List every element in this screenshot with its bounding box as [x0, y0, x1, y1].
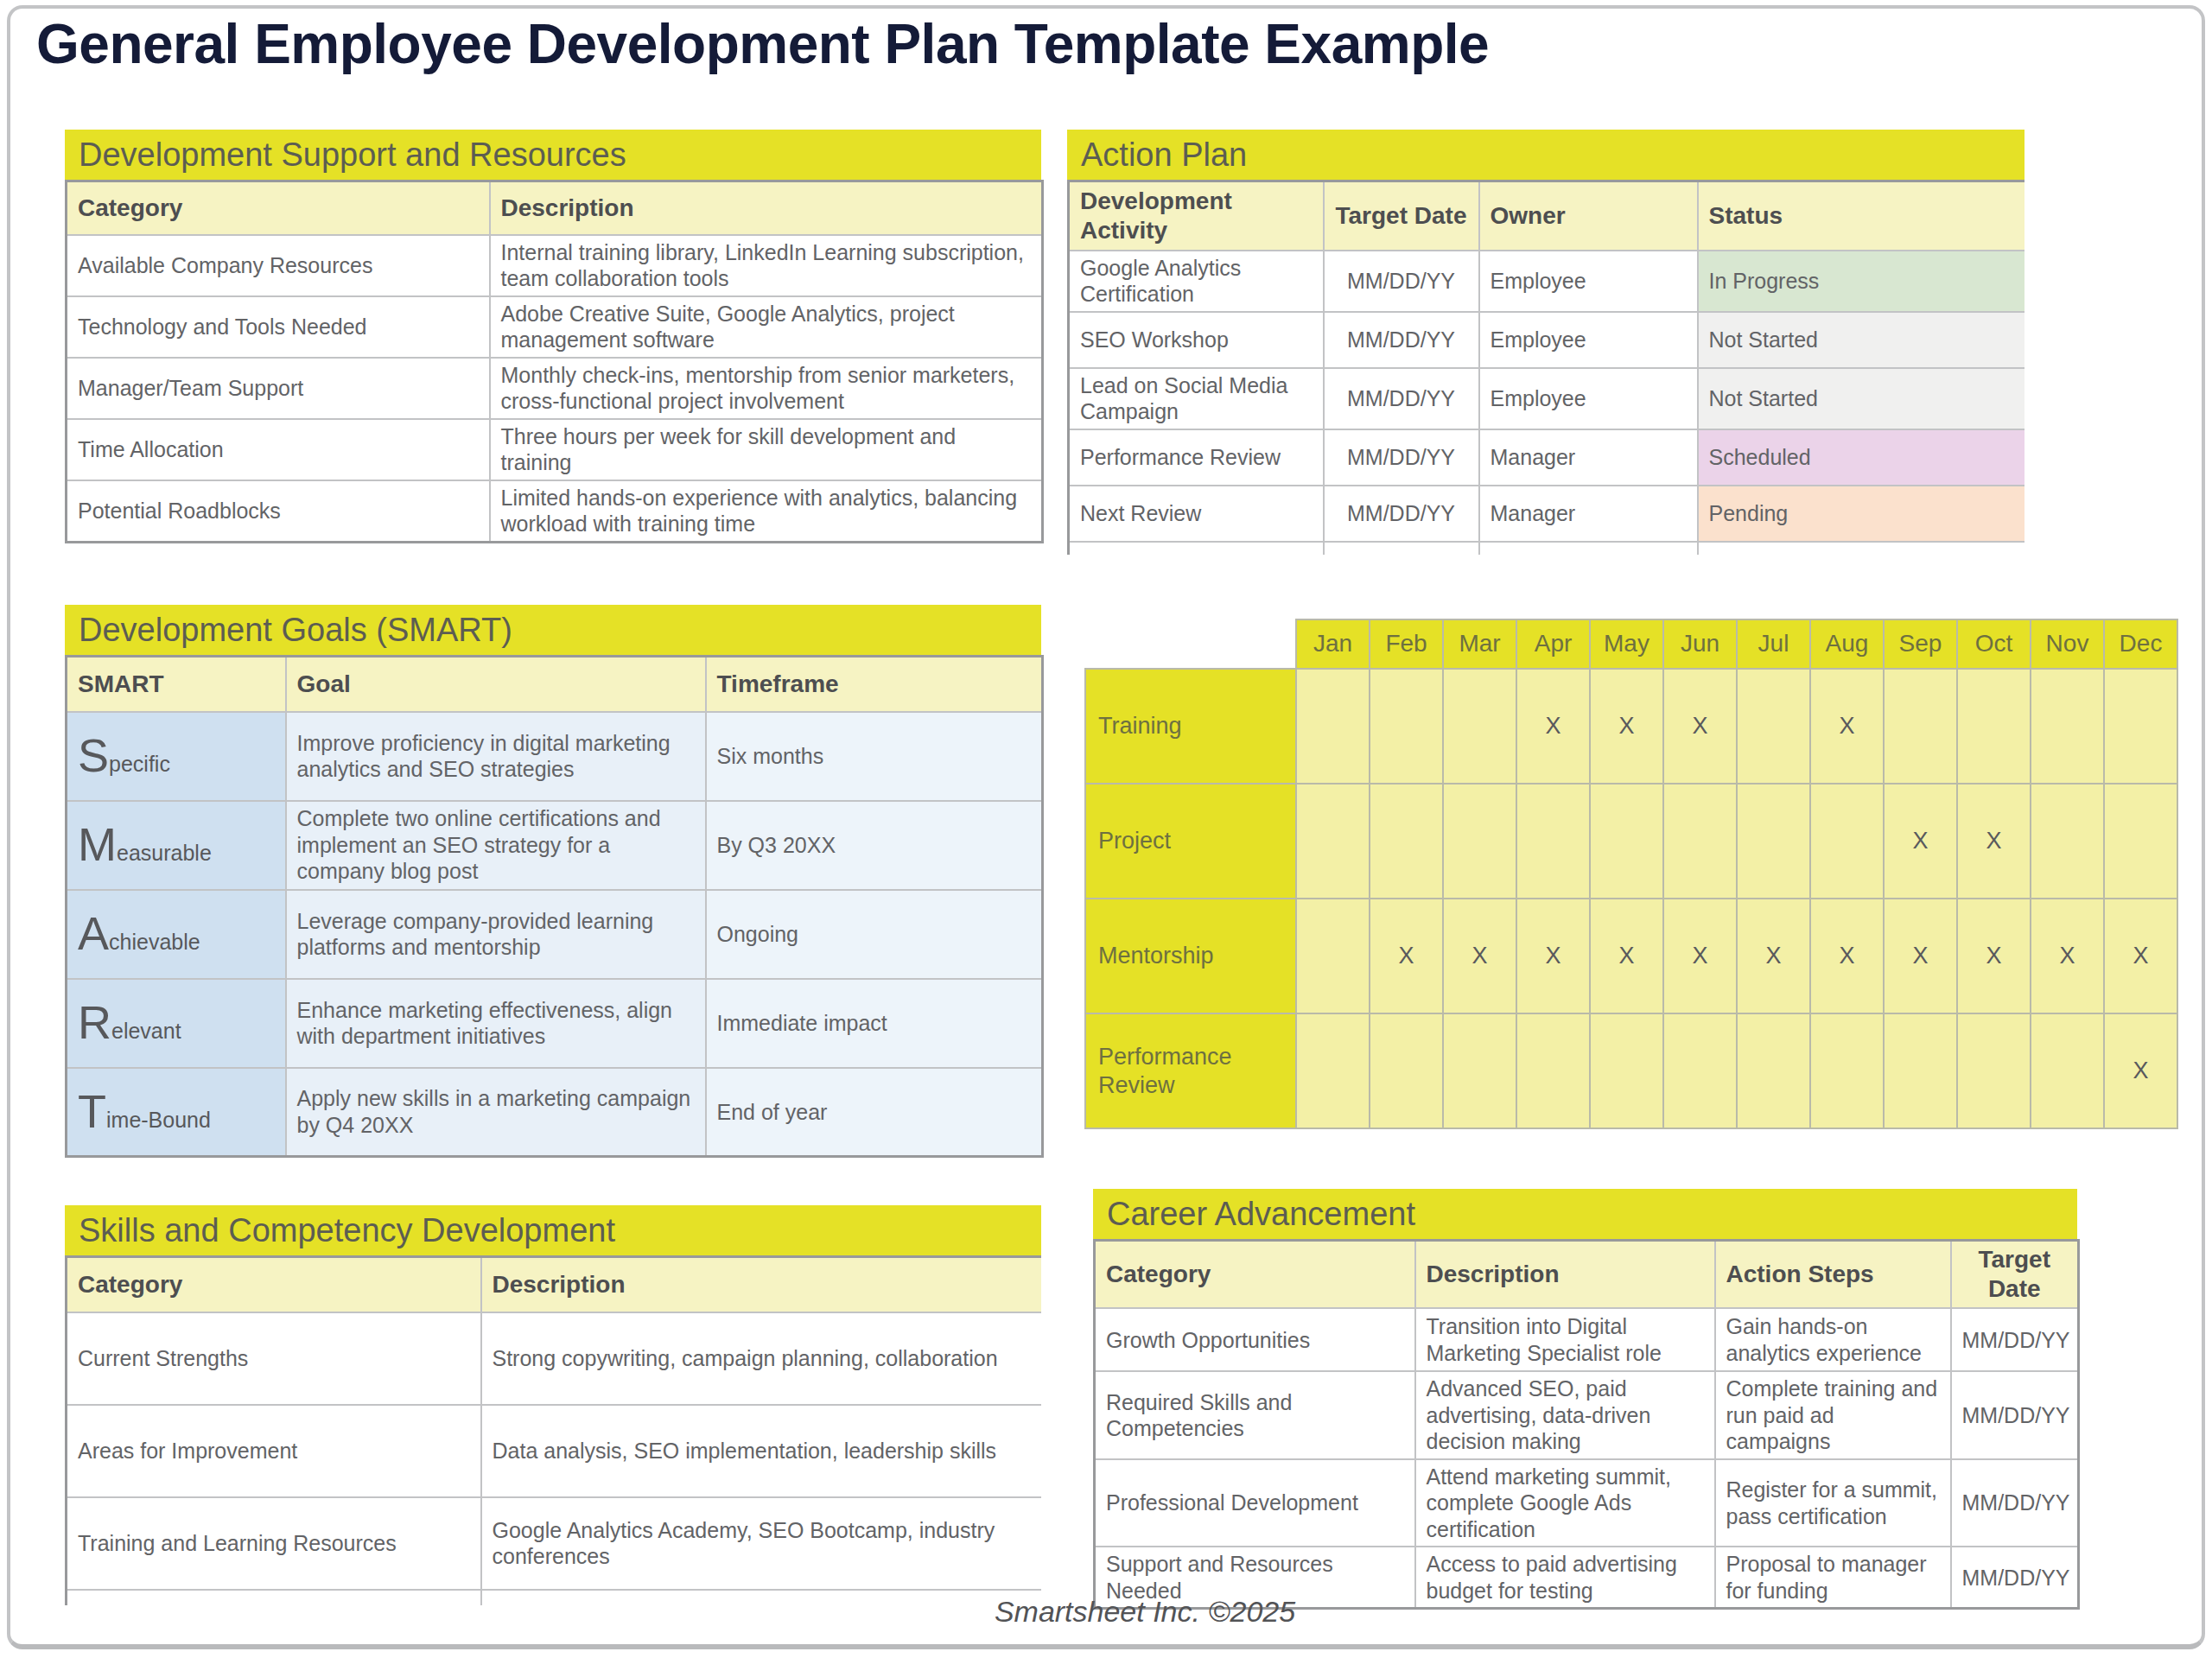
smart-initial: S	[78, 729, 109, 781]
schedule-row-label: Performance Review	[1085, 1013, 1296, 1128]
mark-cell	[1737, 1013, 1810, 1128]
mark-cell	[1884, 669, 1957, 784]
mark-cell	[1296, 899, 1370, 1013]
status-badge: Scheduled	[1698, 429, 2025, 486]
cell-owner: Manager	[1479, 429, 1698, 486]
month-header: Jun	[1663, 619, 1737, 669]
cell-description: Limited hands-on experience with analyti…	[490, 480, 1043, 543]
schedule-row-mentorship: Mentorship X X X X X X X X X X X	[1085, 899, 2177, 1013]
cell-timeframe: End of year	[706, 1068, 1043, 1157]
table-row: Required Skills and Competencies Advance…	[1095, 1371, 2079, 1459]
mark-cell	[1296, 1013, 1370, 1128]
mark-cell	[2031, 1013, 2104, 1128]
month-header: Oct	[1957, 619, 2031, 669]
month-header: Mar	[1443, 619, 1516, 669]
dev-support-section: Development Support and Resources Catego…	[65, 130, 1041, 543]
cell-description: Adobe Creative Suite, Google Analytics, …	[490, 296, 1043, 358]
mark-cell	[1443, 1013, 1516, 1128]
cell-owner: Employee	[1479, 368, 1698, 429]
mark-cell	[2104, 784, 2177, 899]
dev-support-table: Category Description Available Company R…	[65, 180, 1044, 543]
schedule-row-project: Project X X	[1085, 784, 2177, 899]
action-plan-table: Development Activity Target Date Owner S…	[1067, 180, 2024, 555]
mark-cell	[1516, 784, 1590, 899]
header-row: Development Activity Target Date Owner S…	[1069, 181, 2025, 251]
mark-cell: X	[1516, 669, 1590, 784]
table-row: Time Allocation Three hours per week for…	[67, 419, 1043, 480]
table-row: Achievable Leverage company-provided lea…	[67, 890, 1043, 979]
column-header-goal: Goal	[286, 657, 706, 712]
cell-timeframe: By Q3 20XX	[706, 801, 1043, 890]
mark-cell	[1370, 1013, 1443, 1128]
mark-cell	[1737, 784, 1810, 899]
cell-smart-term: Measurable	[67, 801, 286, 890]
mark-cell	[1957, 1013, 2031, 1128]
cell-target-date: MM/DD/YY	[1324, 486, 1479, 542]
month-header: Apr	[1516, 619, 1590, 669]
column-header-description: Description	[490, 181, 1043, 235]
cell-category: Required Skills and Competencies	[1095, 1371, 1415, 1459]
status-badge: In Progress	[1698, 251, 2025, 312]
column-header-category: Category	[67, 181, 490, 235]
mark-cell: X	[1957, 899, 2031, 1013]
mark-cell	[1443, 784, 1516, 899]
mark-cell	[1663, 784, 1737, 899]
cell-target-date: MM/DD/YY	[1324, 368, 1479, 429]
cell-category: Time Allocation	[67, 419, 490, 480]
cell-goal: Complete two online certifications and i…	[286, 801, 706, 890]
cell-target-date: MM/DD/YY	[1324, 251, 1479, 312]
status-badge: Not Started	[1698, 312, 2025, 368]
table-row: Lead on Social Media Campaign MM/DD/YY E…	[1069, 368, 2025, 429]
mark-cell	[1810, 1013, 1884, 1128]
cell-category: Growth Opportunities	[1095, 1308, 1415, 1371]
table-row: Manager/Team Support Monthly check-ins, …	[67, 358, 1043, 419]
cell-category: Professional Development	[1095, 1459, 1415, 1547]
table-row: Time-Bound Apply new skills in a marketi…	[67, 1068, 1043, 1157]
cell-description: Google Analytics Academy, SEO Bootcamp, …	[481, 1497, 1042, 1590]
cell-category: Potential Roadblocks	[67, 480, 490, 543]
month-header: Feb	[1370, 619, 1443, 669]
table-row: SEO Workshop MM/DD/YY Employee Not Start…	[1069, 312, 2025, 368]
cell-goal: Leverage company-provided learning platf…	[286, 890, 706, 979]
cell-timeframe: Ongoing	[706, 890, 1043, 979]
column-header-development-activity: Development Activity	[1069, 181, 1324, 251]
mark-cell: X	[2031, 899, 2104, 1013]
table-row: Growth Opportunities Transition into Dig…	[1095, 1308, 2079, 1371]
cell-target-date: MM/DD/YY	[1951, 1371, 2079, 1459]
column-header-timeframe: Timeframe	[706, 657, 1043, 712]
header-row: Category Description	[67, 181, 1043, 235]
mark-cell	[2031, 669, 2104, 784]
action-plan-section-title: Action Plan	[1067, 130, 2024, 180]
table-row: Potential Roadblocks Limited hands-on ex…	[67, 480, 1043, 543]
career-table: Category Description Action Steps Target…	[1093, 1239, 2080, 1610]
cell-description: Attend marketing summit, complete Google…	[1415, 1459, 1715, 1547]
skills-table: Category Description Current Strengths S…	[65, 1255, 1041, 1605]
status-badge: Pending	[1698, 486, 2025, 542]
cell-target-date: MM/DD/YY	[1951, 1308, 2079, 1371]
cell-activity: Next Review	[1069, 486, 1324, 542]
schedule-row-label: Training	[1085, 669, 1296, 784]
table-row: Next Review MM/DD/YY Manager Pending	[1069, 486, 2025, 542]
header-row: Category Description Action Steps Target…	[1095, 1241, 2079, 1309]
dev-support-section-title: Development Support and Resources	[65, 130, 1041, 180]
smart-initial: A	[78, 907, 109, 959]
schedule-row-performance-review: Performance Review X	[1085, 1013, 2177, 1128]
schedule-row-label: Mentorship	[1085, 899, 1296, 1013]
cell-category: Training and Learning Resources	[67, 1497, 481, 1590]
mark-cell	[1296, 669, 1370, 784]
cell-goal: Improve proficiency in digital marketing…	[286, 712, 706, 801]
table-row: Performance Review MM/DD/YY Manager Sche…	[1069, 429, 2025, 486]
table-row: Available Company Resources Internal tra…	[67, 235, 1043, 296]
mark-cell: X	[1737, 899, 1810, 1013]
column-header-description: Description	[481, 1257, 1042, 1312]
copyright-footer: Smartsheet Inc. ©2025	[0, 1595, 2212, 1629]
cell-action-steps: Complete training and run paid ad campai…	[1715, 1371, 1951, 1459]
column-header-owner: Owner	[1479, 181, 1698, 251]
month-header-row: Jan Feb Mar Apr May Jun Jul Aug Sep Oct …	[1085, 619, 2177, 669]
schedule-row-training: Training X X X X	[1085, 669, 2177, 784]
mark-cell	[1663, 1013, 1737, 1128]
mark-cell	[1370, 669, 1443, 784]
mark-cell: X	[1663, 669, 1737, 784]
smart-goals-table: SMART Goal Timeframe Specific Improve pr…	[65, 655, 1044, 1158]
cell-description: Three hours per week for skill developme…	[490, 419, 1043, 480]
cell-goal: Apply new skills in a marketing campaign…	[286, 1068, 706, 1157]
column-header-smart: SMART	[67, 657, 286, 712]
cell-owner: Manager	[1479, 486, 1698, 542]
table-row: Google Analytics Certification MM/DD/YY …	[1069, 251, 2025, 312]
cell-activity: Performance Review	[1069, 429, 1324, 486]
cell-goal: Enhance marketing effectiveness, align w…	[286, 979, 706, 1068]
mark-cell: X	[1590, 899, 1663, 1013]
cell-action-steps: Register for a summit, pass certificatio…	[1715, 1459, 1951, 1547]
smart-goals-section: Development Goals (SMART) SMART Goal Tim…	[65, 605, 1041, 1158]
mark-cell	[1957, 669, 2031, 784]
month-header: Dec	[2104, 619, 2177, 669]
cell-description: Advanced SEO, paid advertising, data-dri…	[1415, 1371, 1715, 1459]
cell-target-date: MM/DD/YY	[1324, 429, 1479, 486]
month-header: Sep	[1884, 619, 1957, 669]
career-section-title: Career Advancement	[1093, 1189, 2077, 1239]
column-header-description: Description	[1415, 1241, 1715, 1309]
action-plan-section: Action Plan Development Activity Target …	[1067, 130, 2024, 555]
mark-cell: X	[2104, 899, 2177, 1013]
skills-section-title: Skills and Competency Development	[65, 1205, 1041, 1255]
month-header: Jan	[1296, 619, 1370, 669]
cell-action-steps: Gain hands-on analytics experience	[1715, 1308, 1951, 1371]
status-badge: Not Started	[1698, 368, 2025, 429]
cell-target-date: MM/DD/YY	[1324, 312, 1479, 368]
cell-category: Areas for Improvement	[67, 1405, 481, 1497]
mark-cell	[1737, 669, 1810, 784]
mark-cell: X	[1370, 899, 1443, 1013]
mark-cell	[1443, 669, 1516, 784]
schedule-row-label: Project	[1085, 784, 1296, 899]
cell-category: Manager/Team Support	[67, 358, 490, 419]
cell-description: Transition into Digital Marketing Specia…	[1415, 1308, 1715, 1371]
mark-cell	[1516, 1013, 1590, 1128]
mark-cell: X	[1663, 899, 1737, 1013]
table-row: Areas for Improvement Data analysis, SEO…	[67, 1405, 1042, 1497]
cell-category: Technology and Tools Needed	[67, 296, 490, 358]
grid-corner-cell	[1085, 619, 1296, 669]
month-header: May	[1590, 619, 1663, 669]
mark-cell	[1884, 1013, 1957, 1128]
column-header-target-date: Target Date	[1951, 1241, 2079, 1309]
mark-cell: X	[1884, 899, 1957, 1013]
column-header-target-date: Target Date	[1324, 181, 1479, 251]
table-row: Current Strengths Strong copywriting, ca…	[67, 1312, 1042, 1405]
mark-cell: X	[1884, 784, 1957, 899]
mark-cell	[2031, 784, 2104, 899]
schedule-grid-section: Jan Feb Mar Apr May Jun Jul Aug Sep Oct …	[1084, 619, 2177, 1129]
smart-initial: R	[78, 996, 111, 1048]
month-header: Aug	[1810, 619, 1884, 669]
smart-goals-section-title: Development Goals (SMART)	[65, 605, 1041, 655]
mark-cell	[1296, 784, 1370, 899]
month-header: Nov	[2031, 619, 2104, 669]
cell-activity: Google Analytics Certification	[1069, 251, 1324, 312]
cell-smart-term: Specific	[67, 712, 286, 801]
schedule-grid-table: Jan Feb Mar Apr May Jun Jul Aug Sep Oct …	[1084, 619, 2178, 1129]
mark-cell: X	[2104, 1013, 2177, 1128]
table-row: Relevant Enhance marketing effectiveness…	[67, 979, 1043, 1068]
mark-cell	[1370, 784, 1443, 899]
smart-initial: M	[78, 818, 117, 870]
mark-cell: X	[1443, 899, 1516, 1013]
header-row: Category Description	[67, 1257, 1042, 1312]
mark-cell	[1810, 784, 1884, 899]
cell-description: Data analysis, SEO implementation, leade…	[481, 1405, 1042, 1497]
mark-cell: X	[1590, 669, 1663, 784]
mark-cell	[1590, 784, 1663, 899]
cell-owner: Employee	[1479, 312, 1698, 368]
cell-timeframe: Immediate impact	[706, 979, 1043, 1068]
cell-description: Monthly check-ins, mentorship from senio…	[490, 358, 1043, 419]
mark-cell: X	[1957, 784, 2031, 899]
column-header-category: Category	[67, 1257, 481, 1312]
cell-smart-term: Time-Bound	[67, 1068, 286, 1157]
page-title: General Employee Development Plan Templa…	[36, 12, 1489, 76]
cell-category: Available Company Resources	[67, 235, 490, 296]
cell-timeframe: Six months	[706, 712, 1043, 801]
mark-cell: X	[1810, 669, 1884, 784]
cell-description: Internal training library, LinkedIn Lear…	[490, 235, 1043, 296]
cell-category: Current Strengths	[67, 1312, 481, 1405]
cell-target-date: MM/DD/YY	[1951, 1459, 2079, 1547]
cell-activity: SEO Workshop	[1069, 312, 1324, 368]
header-row: SMART Goal Timeframe	[67, 657, 1043, 712]
column-header-category: Category	[1095, 1241, 1415, 1309]
table-row: Specific Improve proficiency in digital …	[67, 712, 1043, 801]
table-row: Technology and Tools Needed Adobe Creati…	[67, 296, 1043, 358]
mark-cell	[2104, 669, 2177, 784]
cell-smart-term: Relevant	[67, 979, 286, 1068]
cell-owner: Employee	[1479, 251, 1698, 312]
mark-cell	[1590, 1013, 1663, 1128]
skills-section: Skills and Competency Development Catego…	[65, 1205, 1041, 1605]
cell-activity: Lead on Social Media Campaign	[1069, 368, 1324, 429]
mark-cell: X	[1810, 899, 1884, 1013]
column-header-action-steps: Action Steps	[1715, 1241, 1951, 1309]
mark-cell: X	[1516, 899, 1590, 1013]
cell-description: Strong copywriting, campaign planning, c…	[481, 1312, 1042, 1405]
empty-row-clipped	[1069, 542, 2025, 556]
cell-smart-term: Achievable	[67, 890, 286, 979]
career-section: Career Advancement Category Description …	[1093, 1189, 2077, 1610]
table-row: Measurable Complete two online certifica…	[67, 801, 1043, 890]
column-header-status: Status	[1698, 181, 2025, 251]
table-row: Training and Learning Resources Google A…	[67, 1497, 1042, 1590]
month-header: Jul	[1737, 619, 1810, 669]
table-row: Professional Development Attend marketin…	[1095, 1459, 2079, 1547]
smart-initial: T	[78, 1085, 106, 1137]
